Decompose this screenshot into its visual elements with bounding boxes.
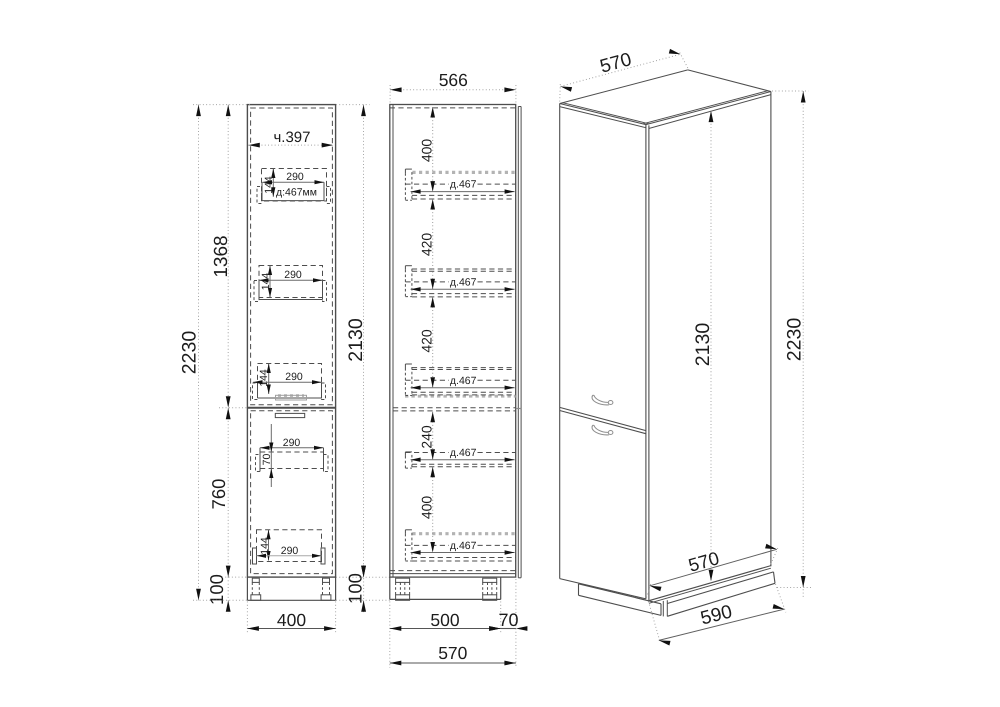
svg-text:70: 70	[261, 454, 273, 466]
svg-text:290: 290	[285, 371, 303, 383]
svg-text:290: 290	[281, 545, 299, 557]
svg-text:500: 500	[430, 610, 459, 630]
svg-text:2230: 2230	[179, 331, 201, 375]
svg-text:290: 290	[284, 269, 302, 281]
svg-text:144: 144	[259, 537, 271, 555]
svg-text:2130: 2130	[345, 318, 367, 362]
svg-text:д.467: д.467	[450, 540, 477, 552]
svg-text:144: 144	[258, 369, 270, 387]
svg-text:566: 566	[439, 70, 468, 90]
svg-text:420: 420	[418, 233, 434, 257]
svg-text:420: 420	[418, 329, 434, 353]
svg-text:570: 570	[438, 643, 467, 663]
svg-text:1368: 1368	[211, 235, 232, 277]
svg-text:д.467: д.467	[450, 375, 477, 387]
svg-text:д.467: д.467	[450, 447, 477, 459]
svg-text:290: 290	[283, 437, 301, 449]
svg-text:2230: 2230	[784, 318, 806, 362]
svg-text:400: 400	[418, 496, 434, 520]
svg-text:240: 240	[418, 425, 434, 449]
svg-text:144: 144	[263, 176, 275, 194]
svg-text:д.467: д.467	[450, 277, 477, 289]
svg-text:760: 760	[208, 479, 229, 510]
svg-text:д:467мм: д:467мм	[276, 187, 317, 199]
svg-text:290: 290	[286, 171, 304, 183]
svg-text:ч.397: ч.397	[273, 129, 310, 146]
svg-text:2130: 2130	[692, 323, 714, 367]
svg-text:д.467: д.467	[450, 179, 477, 191]
svg-text:70: 70	[498, 610, 518, 630]
svg-text:400: 400	[277, 610, 306, 630]
svg-text:100: 100	[345, 573, 366, 604]
svg-text:400: 400	[418, 139, 434, 163]
